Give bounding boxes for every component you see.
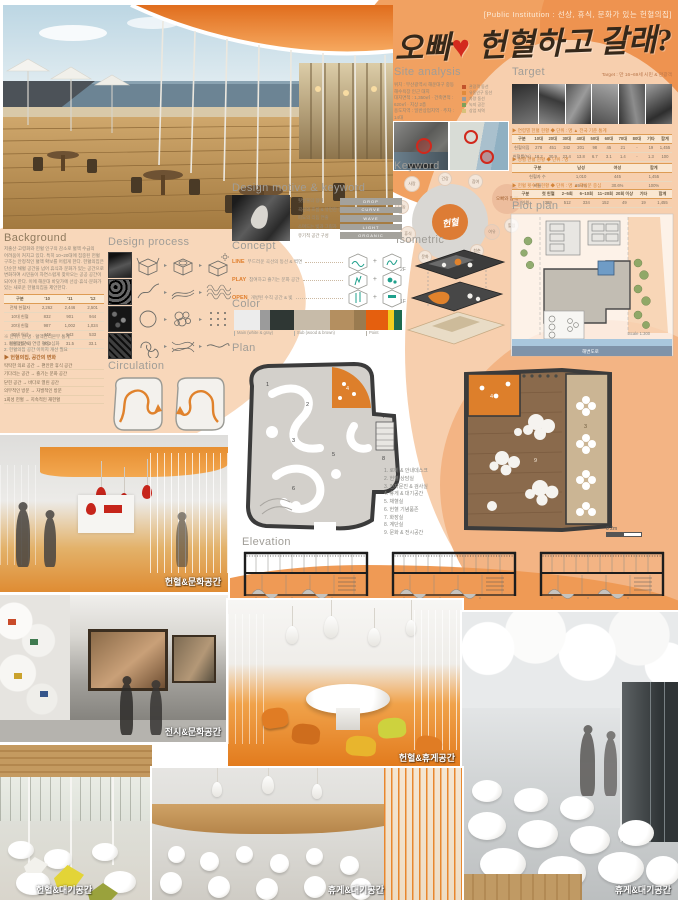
render-caption: 전시&문화공간 — [165, 725, 221, 738]
render-caption: 휴게&대기공간 — [615, 883, 671, 896]
process-sketch — [170, 280, 196, 304]
concept-sketch — [346, 288, 370, 308]
color-group-label: Point — [366, 331, 379, 336]
person-silhouette — [150, 687, 162, 735]
background-pairs-title: ▶ 헌혈의집, 공간의 변화 — [4, 354, 56, 361]
motive-photo — [232, 195, 290, 241]
color-heading: Color — [232, 298, 260, 310]
plot-plan-drawing: Scale 1:300 해변도로 — [510, 213, 674, 357]
motive-row: 파도의 리듬 연출WAVE — [298, 214, 402, 223]
site-marker-icon — [480, 150, 494, 164]
plot-scale-label: Scale 1:300 — [628, 331, 651, 336]
isometric-heading: Isometric — [396, 234, 444, 246]
site-analysis-heading: Site analysis — [394, 66, 461, 78]
motive-rows: 핏방울의 형태DROP 곡선의 흐름 & 유연한 동선CURVE 파도의 리듬 … — [298, 197, 402, 240]
svg-text:7: 7 — [382, 414, 385, 420]
render-caption: 헌혈&문화공간 — [165, 575, 221, 588]
process-row: ▸ ▸ — [108, 306, 234, 332]
process-row: ▸ ▸ — [108, 333, 234, 359]
color-swatch — [260, 310, 270, 330]
background-paragraph: 저출산·고령화와 헌혈 인구의 감소로 혈액 수급의어려움이 커지고 있다. 특… — [4, 246, 104, 292]
motive-row: 유기적 공간 구성ORGANIC — [298, 231, 402, 240]
design-motive-heading: Design motive & keyword — [232, 182, 365, 194]
target-note: Target : 만 16~69세 시민 & 관광객 — [540, 71, 672, 78]
svg-text:5: 5 — [332, 452, 335, 458]
title-pre: 오빠 — [394, 30, 452, 67]
floor-plan-2f: 493 — [462, 366, 614, 534]
site-marker-icon — [464, 130, 478, 144]
svg-text:3: 3 — [584, 424, 587, 430]
person-silhouette — [176, 519, 188, 567]
render-caption: 헌혈&대기공간 — [36, 883, 92, 896]
color-swatch — [294, 310, 330, 330]
site-line: 용도지역 : 일반상업지역 · 주차 : 14대 — [394, 108, 458, 121]
svg-text:4: 4 — [490, 394, 493, 400]
color-swatch — [330, 310, 354, 330]
circulation-plan-2f — [172, 374, 228, 434]
concept-row: PLAY참여하고 즐기는 문화 공간 + — [232, 271, 404, 288]
person-silhouette — [580, 732, 595, 796]
circulation-heading: Circulation — [108, 360, 164, 372]
svg-text:3: 3 — [292, 438, 295, 444]
heart-icon: ♥ — [451, 29, 471, 65]
process-sketch — [135, 280, 161, 304]
color-palette — [234, 310, 402, 330]
process-sketch — [135, 253, 161, 277]
isometric-drawing: 2F 1F — [398, 246, 510, 346]
svg-text:4: 4 — [346, 386, 349, 392]
keyword-heading: Keyword — [394, 160, 440, 172]
legend-item: 상업 지역 — [462, 108, 508, 114]
person-silhouette — [120, 683, 133, 735]
title-post: 헌혈하고 갈래? — [469, 22, 672, 64]
design-process-heading: Design process — [108, 236, 189, 248]
keyword-bubble: 참여 — [468, 174, 483, 189]
concept-heading: Concept — [232, 240, 276, 252]
orange-strings — [384, 768, 462, 900]
color-swatch — [270, 310, 294, 330]
site-map-image — [450, 122, 508, 170]
process-photo — [108, 306, 132, 332]
background-pairs: 딱딱한 의료 공간 → 편안한 휴식 공간기다리는 공간 → 즐기는 문화 공간… — [4, 362, 104, 404]
process-sketch — [170, 253, 196, 277]
process-sketch — [170, 307, 196, 331]
color-group-label: Sub (wood & brown) — [294, 331, 335, 336]
site-analysis-legend: 관광객 동선 유동인구 동선 차량 동선 녹지 공간 상업 지역 — [462, 84, 508, 114]
process-sketch — [170, 334, 196, 358]
lounge-chair — [345, 735, 376, 757]
render-caption: 휴게&대기공간 — [328, 883, 384, 896]
render-rest-waiting-large: 휴게&대기공간 — [462, 612, 678, 900]
site-line: 위치 : 부산광역시 해운대구 중동 해수욕장 인근 대지 — [394, 82, 458, 95]
render-caption: 헌혈&휴게공간 — [399, 751, 455, 764]
render-donation-lounge: 헌혈&휴게공간 — [228, 600, 462, 768]
road-label: 해변도로 — [582, 348, 599, 355]
keyword-bubble: 여유 — [484, 224, 500, 240]
keyword-bubble: 사랑 — [404, 176, 420, 192]
background-heading: Background — [4, 232, 67, 244]
process-sketch — [135, 307, 161, 331]
svg-text:6: 6 — [292, 486, 295, 492]
concept-sketch — [380, 252, 404, 272]
svg-text:8: 8 — [382, 456, 385, 462]
render-donation-culture: 헌혈&문화공간 — [0, 435, 228, 592]
wood-floor-band — [462, 874, 582, 900]
concept-sketch — [346, 270, 370, 290]
plan-legend: 1. 로비 & 안내데스크2. 헌혈 상담실3. 전자문진 & 검사실4. 휴게… — [384, 468, 460, 538]
concept-sketch — [380, 270, 404, 290]
process-sketch — [205, 307, 231, 331]
site-marker-icon — [416, 138, 432, 154]
render-rest-waiting-counter: 휴게&대기공간 — [152, 768, 462, 900]
person-silhouette — [44, 517, 56, 567]
process-row: ▸ ▸ — [108, 252, 234, 278]
background-notes: ※ 단위 : 천 명 · 혈액관리본부 통계1. 헌혈 인구의 연령 편중 심화… — [4, 334, 104, 354]
render-donation-waiting: 헌혈&대기공간 — [0, 745, 152, 900]
poster-board: [Public Institution : 선상, 휴식, 문화가 있는 헌혈의… — [0, 0, 678, 900]
process-photo — [108, 252, 132, 278]
keyword-bubble: 건강 — [438, 172, 452, 186]
gallery-painting — [172, 635, 216, 683]
color-swatch — [354, 310, 366, 330]
site-line: 대지면적 : 1,350㎡ · 건축면적 : 620㎡ · 지상 2층 — [394, 95, 458, 108]
color-group-label: Main (white & gray) — [234, 331, 273, 336]
process-sketch — [205, 334, 231, 358]
person-silhouette — [604, 738, 617, 796]
lounge-chair — [261, 706, 290, 729]
glass-wall — [620, 682, 678, 842]
elevation-drawings — [242, 548, 666, 600]
render-exhibition-culture: 전시&문화공간 — [0, 595, 228, 742]
circulation-plan-1f — [110, 374, 166, 434]
plan-scale-bar: 0 2m — [606, 526, 642, 537]
keyword-center-label: 헌혈 — [441, 214, 459, 229]
color-swatch — [366, 310, 388, 330]
concept-sketch — [346, 252, 370, 272]
svg-text:2: 2 — [306, 402, 309, 408]
process-photo — [108, 333, 132, 359]
floor-plan-1f: 123 456 78 — [236, 356, 408, 534]
motive-row: 핏방울의 형태DROP — [298, 197, 402, 206]
process-sketch — [205, 280, 231, 304]
person-silhouette — [16, 509, 30, 567]
motive-row: 스며드는 빛과 그림자LIGHT — [298, 223, 402, 232]
concept-row: LINE부드러운 곡선의 동선 & 벽면 + — [232, 253, 404, 270]
plan-heading: Plan — [232, 342, 256, 354]
lounge-chair — [377, 717, 407, 739]
motive-row: 곡선의 흐름 & 유연한 동선CURVE — [298, 206, 402, 215]
concept-sketch — [380, 288, 404, 308]
color-swatch — [394, 310, 402, 330]
lounge-chair — [291, 723, 321, 746]
wood-ceiling — [0, 745, 152, 777]
process-sketch — [135, 334, 161, 358]
target-photo-strip — [512, 84, 672, 124]
process-sketch — [205, 253, 231, 277]
process-row: ▸ ▸ — [108, 279, 234, 305]
color-labels: Main (white & gray) Sub (wood & brown) P… — [234, 331, 402, 341]
color-swatch — [234, 310, 260, 330]
process-photo — [108, 279, 132, 305]
plot-plan-heading: Plot plan — [512, 200, 558, 212]
svg-text:9: 9 — [534, 458, 537, 464]
svg-text:1: 1 — [266, 382, 269, 388]
elevation-heading: Elevation — [242, 536, 291, 548]
